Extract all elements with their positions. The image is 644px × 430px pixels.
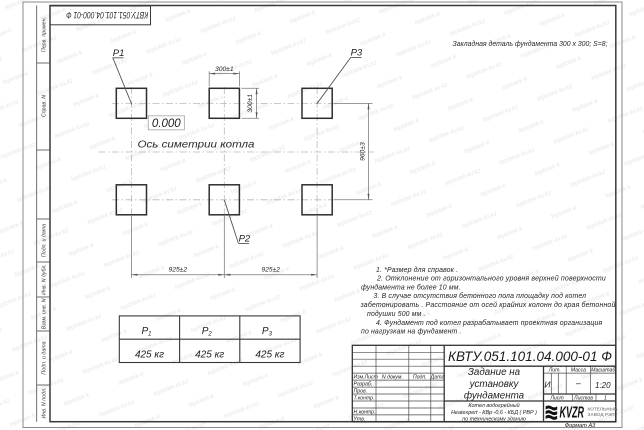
svg-text:4. Фундамент под котел ра: 4. Фундамент под котел разрабатывает про…: [376, 319, 602, 327]
svg-text:1. *Размер для справок .: 1. *Размер для справок .: [376, 266, 458, 274]
svg-text:Дата: Дата: [430, 374, 445, 380]
svg-text:N докум.: N докум.: [382, 374, 403, 380]
svg-text:Инв. N дубл.: Инв. N дубл.: [42, 264, 48, 295]
svg-text:Пров.: Пров.: [354, 388, 368, 394]
svg-text:0.000: 0.000: [152, 118, 181, 130]
svg-text:Разраб.: Разраб.: [354, 381, 373, 387]
svg-text:Р2: Р2: [239, 234, 251, 245]
svg-text:3. В случае отсутствия бет: 3. В случае отсутствия бетонного пола пл…: [374, 292, 587, 300]
svg-text:забетонировать . Расстояние: забетонировать . Расстояние от осей край…: [359, 301, 615, 309]
svg-text:425 кг: 425 кг: [255, 349, 284, 360]
svg-text:Справ. N: Справ. N: [42, 95, 48, 117]
svg-text:Перв. примен.: Перв. примен.: [42, 17, 48, 52]
svg-text:КОТЕЛЬНЫЙ: КОТЕЛЬНЫЙ: [588, 405, 618, 412]
svg-text:по нагрузкам на фундамент .: по нагрузкам на фундамент .: [361, 328, 462, 336]
svg-text:ЗАВОД РЭП: ЗАВОД РЭП: [588, 412, 615, 417]
svg-text:960±3: 960±3: [360, 142, 367, 161]
svg-text:по техническому зданию: по техническому зданию: [462, 417, 526, 423]
svg-text:Подп. и дата: Подп. и дата: [42, 224, 48, 257]
svg-text:Р3: Р3: [351, 48, 363, 59]
svg-text:–: –: [575, 378, 581, 388]
svg-text:установку: установку: [469, 379, 520, 390]
svg-text:Heatexpert - КВр -0,6 - КБД (: Heatexpert - КВр -0,6 - КБД ( РВР ): [451, 410, 537, 416]
svg-text:Лит.: Лит.: [548, 367, 561, 373]
svg-text:Инв. N подл.: Инв. N подл.: [42, 388, 48, 419]
svg-text:фундамента: фундамента: [464, 391, 525, 402]
svg-text:Подп. и дата: Подп. и дата: [42, 341, 48, 374]
svg-text:2. Отклонение от горизонтал: 2. Отклонение от горизонтального уровня …: [376, 275, 606, 283]
svg-text:425 кг: 425 кг: [135, 349, 164, 360]
svg-text:300±1: 300±1: [247, 94, 254, 113]
svg-text:Лист: Лист: [549, 396, 564, 402]
svg-text:925±2: 925±2: [169, 267, 188, 274]
svg-text:1: 1: [604, 396, 607, 402]
svg-text:300±1: 300±1: [215, 66, 234, 73]
svg-text:Н.контр.: Н.контр.: [354, 409, 376, 415]
svg-text:Масштаб: Масштаб: [591, 367, 616, 373]
svg-text:Масса: Масса: [571, 367, 586, 373]
svg-text:425 кг: 425 кг: [195, 349, 224, 360]
svg-text:Ось симетрии котла: Ось симетрии котла: [138, 139, 255, 151]
svg-text:И: И: [544, 380, 551, 390]
svg-text:КВТУ.051.101.04.000-01 Ф: КВТУ.051.101.04.000-01 Ф: [448, 349, 612, 364]
svg-text:подушки 500 мм .: подушки 500 мм .: [367, 310, 426, 318]
svg-text:925±2: 925±2: [261, 267, 280, 274]
svg-text:KVZR: KVZR: [560, 405, 585, 422]
svg-text:Листов: Листов: [573, 396, 593, 402]
svg-text:Подп.: Подп.: [413, 374, 427, 380]
svg-text:Взам. инв. N: Взам. инв. N: [42, 298, 48, 329]
svg-text:Закладная деталь фундамента: Закладная деталь фундамента 300 х 300; S…: [453, 39, 608, 48]
svg-text:Т.контр.: Т.контр.: [354, 395, 375, 401]
svg-text:Котел водогрейный: Котел водогрейный: [468, 402, 519, 409]
svg-text:1:20: 1:20: [595, 381, 611, 390]
svg-text:Задание на: Задание на: [468, 367, 521, 378]
svg-text:Изм.Лист: Изм.Лист: [354, 374, 379, 380]
svg-text:фундамента не более 10 мм: фундамента не более 10 мм.: [361, 283, 461, 291]
svg-text:КВТУ.051.101.04.000-01 Ф: КВТУ.051.101.04.000-01 Ф: [66, 10, 148, 20]
svg-text:Утв.: Утв.: [354, 416, 366, 422]
svg-text:Р1: Р1: [113, 48, 125, 59]
svg-text:Формат А3: Формат А3: [565, 423, 596, 429]
